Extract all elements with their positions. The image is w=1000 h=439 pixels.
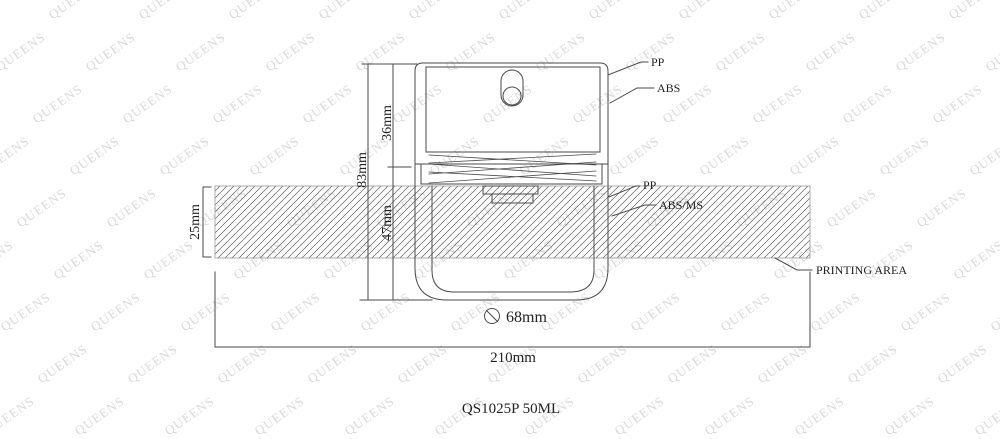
material-label-bottle: ABS/MS (659, 198, 703, 212)
thread-lines (429, 154, 596, 183)
cap-collar (415, 164, 608, 184)
leader-printing-area (775, 258, 812, 270)
dim-label-diameter: 68mm (506, 309, 547, 326)
leader-pp-cap (608, 62, 648, 75)
diameter-icon (485, 309, 500, 324)
dim-bracket-25mm (203, 187, 211, 257)
leader-abs (610, 88, 654, 103)
dim-label-width: 210mm (490, 350, 536, 366)
cap-inner-panel (426, 67, 600, 152)
dim-label-band-height: 25mm (188, 204, 203, 240)
printing-area-band (215, 186, 810, 258)
material-label-cap-inner: ABS (657, 81, 680, 95)
printing-area-label: PRINTING AREA (816, 263, 907, 277)
material-label-pump: PP (643, 178, 657, 192)
dim-label-cap-height: 36mm (380, 105, 395, 141)
cap-outline (415, 63, 608, 186)
technical-drawing: 83mm 36mm 47mm 25mm PP ABS PP ABS/MS PRI… (0, 0, 1000, 439)
nozzle-hole (503, 87, 521, 105)
material-label-cap: PP (651, 55, 665, 69)
drawing-title: QS1025P 50ML (462, 401, 560, 417)
dim-label-body-height: 47mm (380, 205, 395, 241)
dim-label-total-height: 83mm (355, 152, 370, 188)
drawing-sheet: QUEENSQUEENSQUEENSQUEENSQUEENSQUEENSQUEE… (0, 0, 1000, 439)
